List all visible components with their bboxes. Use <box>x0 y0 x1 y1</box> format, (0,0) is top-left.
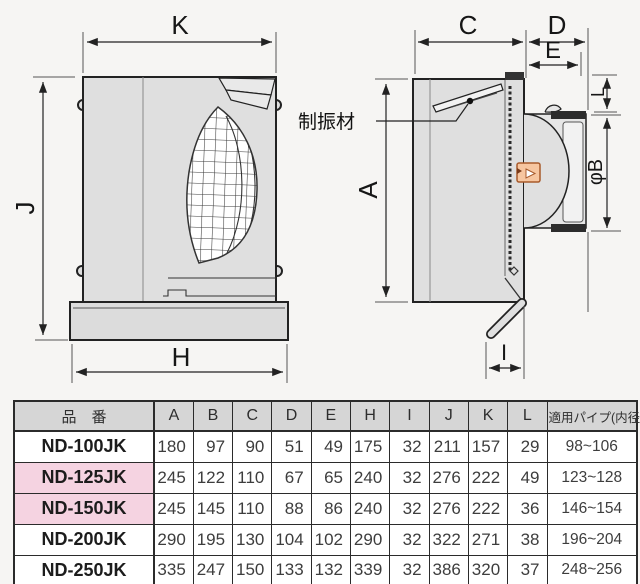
dim-cell: 132 <box>311 555 350 584</box>
dim-cell: 97 <box>193 431 232 462</box>
column-header-c: C <box>233 401 272 431</box>
column-header-h: H <box>350 401 389 431</box>
dim-cell: 150 <box>233 555 272 584</box>
table-row: ND-100JK 180 97 90 51 49 175 32 211 157 … <box>14 431 637 462</box>
dim-cell: 245 <box>154 493 193 524</box>
callout-label: 制振材 <box>298 111 355 133</box>
dimension-h: H <box>72 342 287 383</box>
header-row: 品 番 A B C D E H I J K L 適用パイプ(内径) <box>14 401 637 431</box>
pipe-hatch-bottom <box>551 224 586 232</box>
page: K J H <box>0 0 640 584</box>
column-header-i: I <box>390 401 429 431</box>
dim-cell: 32 <box>390 431 429 462</box>
dim-label-l: L <box>588 87 608 97</box>
dim-cell: 32 <box>390 462 429 493</box>
model-cell: ND-200JK <box>14 524 154 555</box>
column-header-d: D <box>272 401 311 431</box>
dim-label-a: A <box>353 181 383 199</box>
pipe-range-cell: 248~256 <box>547 555 637 584</box>
dim-cell: 130 <box>233 524 272 555</box>
dim-cell: 104 <box>272 524 311 555</box>
dim-cell: 32 <box>390 524 429 555</box>
dim-cell: 157 <box>468 431 507 462</box>
dim-label-phi-b: φB <box>585 159 607 185</box>
table-row: ND-125JK 245 122 110 67 65 240 32 276 22… <box>14 462 637 493</box>
dim-label-j: J <box>10 202 40 215</box>
dimension-e: E <box>529 37 581 76</box>
column-header-l: L <box>508 401 547 431</box>
dim-label-c: C <box>459 10 478 40</box>
column-header-b: B <box>193 401 232 431</box>
dim-cell: 322 <box>429 524 468 555</box>
column-header-part-no: 品 番 <box>14 401 154 431</box>
dim-cell: 145 <box>193 493 232 524</box>
dim-label-k: K <box>171 10 189 40</box>
dim-cell: 67 <box>272 462 311 493</box>
dim-cell: 339 <box>350 555 389 584</box>
mounting-lip <box>505 72 524 80</box>
dim-cell: 32 <box>390 493 429 524</box>
dim-cell: 247 <box>193 555 232 584</box>
model-cell: ND-125JK <box>14 462 154 493</box>
mounting-flange <box>70 302 288 340</box>
dim-cell: 36 <box>508 493 547 524</box>
dim-cell: 240 <box>350 493 389 524</box>
pipe-range-cell: 146~154 <box>547 493 637 524</box>
dim-cell: 290 <box>350 524 389 555</box>
dim-cell: 245 <box>154 462 193 493</box>
column-header-k: K <box>468 401 507 431</box>
dim-cell: 386 <box>429 555 468 584</box>
table-row: ND-150JK 245 145 110 88 86 240 32 276 22… <box>14 493 637 524</box>
dim-cell: 222 <box>468 462 507 493</box>
dim-label-h: H <box>172 342 191 372</box>
dimension-k: K <box>83 10 276 73</box>
dim-cell: 240 <box>350 462 389 493</box>
dim-cell: 38 <box>508 524 547 555</box>
model-cell: ND-100JK <box>14 431 154 462</box>
dimension-c: C <box>415 10 526 78</box>
dim-cell: 320 <box>468 555 507 584</box>
table-row: ND-200JK 290 195 130 104 102 290 32 322 … <box>14 524 637 555</box>
pipe-range-cell: 196~204 <box>547 524 637 555</box>
dim-cell: 271 <box>468 524 507 555</box>
dim-cell: 86 <box>311 493 350 524</box>
dim-cell: 222 <box>468 493 507 524</box>
dim-label-e: E <box>545 37 561 64</box>
dim-cell: 51 <box>272 431 311 462</box>
dim-cell: 32 <box>390 555 429 584</box>
dim-cell: 29 <box>508 431 547 462</box>
dim-cell: 211 <box>429 431 468 462</box>
dim-cell: 110 <box>233 462 272 493</box>
pipe-sticker <box>517 163 540 182</box>
model-cell: ND-250JK <box>14 555 154 584</box>
dim-cell: 195 <box>193 524 232 555</box>
model-cell: ND-150JK <box>14 493 154 524</box>
side-view: 制振材 <box>298 10 621 379</box>
dim-cell: 88 <box>272 493 311 524</box>
dim-cell: 102 <box>311 524 350 555</box>
dimension-a: A <box>353 79 408 302</box>
front-view: K J H <box>10 10 288 383</box>
dimension-l: L <box>588 75 617 112</box>
pipe-hatch-top <box>551 111 586 119</box>
table-row: ND-250JK 335 247 150 133 132 339 32 386 … <box>14 555 637 584</box>
column-header-pipe: 適用パイプ(内径) <box>547 401 637 431</box>
dim-cell: 276 <box>429 493 468 524</box>
pipe-section <box>517 105 586 232</box>
dim-cell: 49 <box>311 431 350 462</box>
dim-cell: 65 <box>311 462 350 493</box>
dim-cell: 110 <box>233 493 272 524</box>
dim-cell: 175 <box>350 431 389 462</box>
pipe-range-cell: 98~106 <box>547 431 637 462</box>
dim-cell: 122 <box>193 462 232 493</box>
dim-cell: 290 <box>154 524 193 555</box>
dim-cell: 335 <box>154 555 193 584</box>
pipe-range-cell: 123~128 <box>547 462 637 493</box>
vibration-damper-dot <box>467 98 473 104</box>
dimension-phi-b: φB <box>585 115 621 231</box>
drain-spout <box>491 303 522 334</box>
column-header-a: A <box>154 401 193 431</box>
dimension-j: J <box>10 77 75 340</box>
spec-table: 品 番 A B C D E H I J K L 適用パイプ(内径) ND-100… <box>13 400 638 584</box>
dim-label-d: D <box>548 10 567 40</box>
dim-cell: 276 <box>429 462 468 493</box>
dim-cell: 49 <box>508 462 547 493</box>
technical-drawing: K J H <box>0 0 640 398</box>
dim-cell: 90 <box>233 431 272 462</box>
dim-cell: 37 <box>508 555 547 584</box>
dim-cell: 133 <box>272 555 311 584</box>
dim-label-i: I <box>501 340 507 365</box>
dim-cell: 180 <box>154 431 193 462</box>
column-header-j: J <box>429 401 468 431</box>
column-header-e: E <box>311 401 350 431</box>
